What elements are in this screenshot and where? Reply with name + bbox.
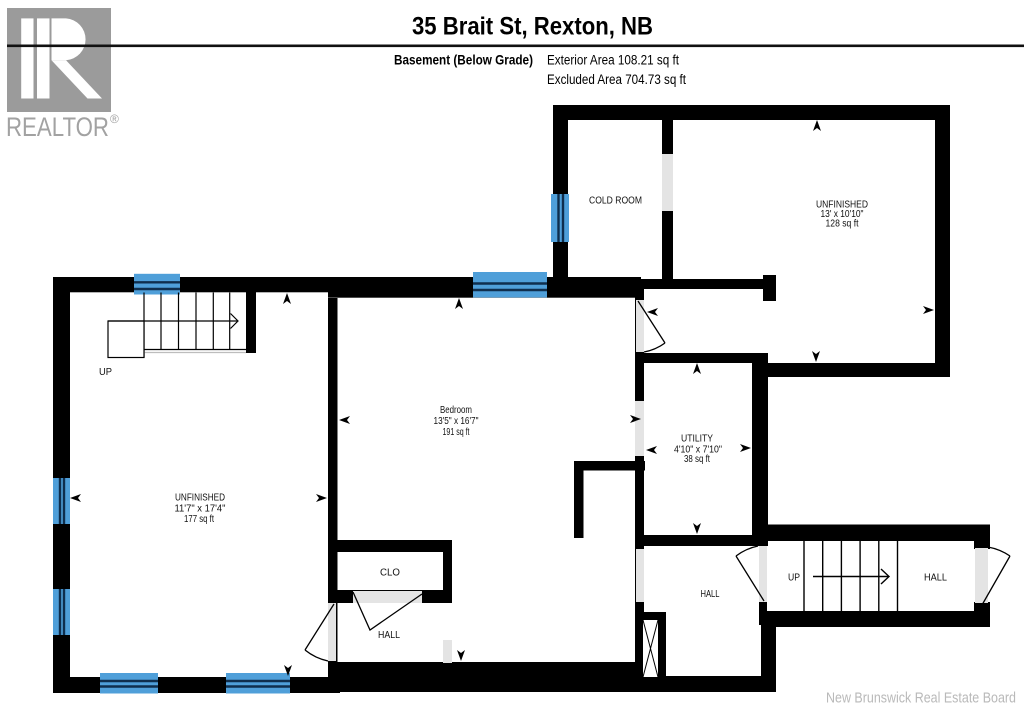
svg-text:Excluded Area 704.73 sq ft: Excluded Area 704.73 sq ft bbox=[547, 72, 686, 87]
svg-text:Exterior Area 108.21 sq ft: Exterior Area 108.21 sq ft bbox=[547, 52, 679, 67]
svg-text:CLO: CLO bbox=[380, 568, 400, 579]
svg-text:35 Brait St, Rexton, NB: 35 Brait St, Rexton, NB bbox=[412, 12, 653, 40]
svg-text:New Brunswick Real Estate Boar: New Brunswick Real Estate Board bbox=[826, 691, 1016, 707]
svg-text:UP: UP bbox=[788, 573, 800, 584]
svg-text:128 sq ft: 128 sq ft bbox=[826, 219, 859, 230]
svg-text:38 sq ft: 38 sq ft bbox=[684, 454, 710, 465]
svg-text:UTILITY: UTILITY bbox=[681, 434, 713, 445]
svg-text:REALTOR: REALTOR bbox=[6, 112, 109, 142]
svg-text:HALL: HALL bbox=[924, 573, 947, 584]
svg-text:UNFINISHED: UNFINISHED bbox=[175, 493, 225, 504]
svg-text:®: ® bbox=[110, 112, 119, 126]
svg-text:11'7" x 17'4": 11'7" x 17'4" bbox=[175, 503, 226, 514]
svg-text:UP: UP bbox=[99, 367, 112, 378]
svg-text:Basement (Below Grade): Basement (Below Grade) bbox=[394, 52, 533, 67]
svg-text:COLD ROOM: COLD ROOM bbox=[589, 196, 642, 207]
svg-text:HALL: HALL bbox=[701, 589, 720, 600]
svg-text:177 sq ft: 177 sq ft bbox=[184, 514, 214, 525]
svg-text:HALL: HALL bbox=[378, 630, 400, 641]
svg-text:191 sq ft: 191 sq ft bbox=[443, 426, 470, 438]
